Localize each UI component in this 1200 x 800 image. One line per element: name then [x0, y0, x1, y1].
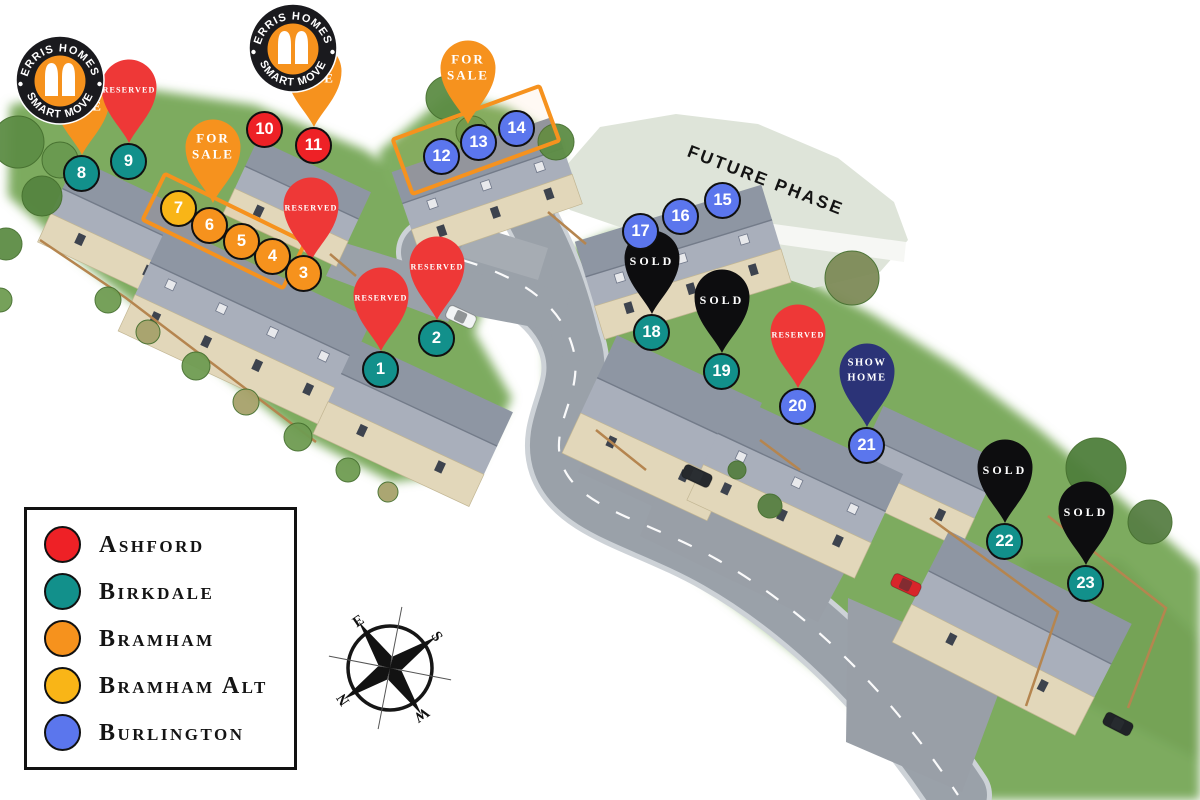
legend-item-bramham: Bramham — [27, 620, 294, 657]
plot-number: 20 — [788, 397, 806, 416]
erris-homes-logo: ERRIS HOMESSMART MOVE — [14, 34, 106, 131]
pin-for-sale-plots-4-7[interactable]: FORSALE — [181, 117, 245, 205]
plot-marker-9[interactable]: 9 — [110, 143, 147, 180]
pin-label: SOLD — [1064, 505, 1109, 519]
legend-item-birkdale: Birkdale — [27, 573, 294, 610]
legend-label: Bramham Alt — [99, 674, 268, 698]
legend-item-burlington: Burlington — [27, 714, 294, 751]
plot-number: 18 — [642, 323, 660, 342]
plot-number: 4 — [268, 247, 277, 266]
compass-letter-w: W — [411, 704, 432, 726]
plot-marker-19[interactable]: 19 — [703, 353, 740, 390]
plot-marker-10[interactable]: 10 — [246, 111, 283, 148]
plot-number: 8 — [77, 164, 86, 183]
plot-number: 19 — [712, 362, 730, 381]
legend-color-swatch — [44, 714, 81, 751]
plot-marker-8[interactable]: 8 — [63, 155, 100, 192]
plot-number: 9 — [124, 152, 133, 171]
legend-item-ashford: Ashford — [27, 526, 294, 563]
plot-marker-5[interactable]: 5 — [223, 223, 260, 260]
plot-number: 2 — [432, 329, 441, 348]
pin-label: RESERVED — [284, 204, 337, 213]
pin-label: FOR — [451, 52, 484, 67]
site-plan: FUTURE PHASE NESW FORSALEFORSALERESERVED… — [0, 0, 1200, 800]
legend-color-swatch — [44, 526, 81, 563]
pin-show-home-plot-21[interactable]: SHOWHOME — [835, 341, 899, 429]
pin-sold-plot-23[interactable]: SOLD — [1054, 479, 1118, 567]
plot-number: 1 — [376, 360, 385, 379]
plot-marker-20[interactable]: 20 — [779, 388, 816, 425]
plot-number: 5 — [237, 232, 246, 251]
plot-number: 7 — [174, 199, 183, 218]
plot-number: 22 — [995, 532, 1013, 551]
plot-number: 6 — [205, 216, 214, 235]
plot-marker-1[interactable]: 1 — [362, 351, 399, 388]
legend-label: Burlington — [99, 721, 245, 745]
pin-reserved-plot-9[interactable]: RESERVED — [97, 57, 161, 145]
legend-label: Birkdale — [99, 580, 214, 604]
plot-number: 3 — [299, 264, 308, 283]
plot-marker-14[interactable]: 14 — [498, 110, 535, 147]
pin-reserved-plot-20[interactable]: RESERVED — [766, 302, 830, 390]
plot-marker-23[interactable]: 23 — [1067, 565, 1104, 602]
plot-number: 14 — [507, 119, 525, 138]
pin-label: SOLD — [700, 293, 745, 307]
plot-marker-17[interactable]: 17 — [622, 213, 659, 250]
pin-label: RESERVED — [771, 331, 824, 340]
pin-label: RESERVED — [102, 86, 155, 95]
plot-marker-7[interactable]: 7 — [160, 190, 197, 227]
pin-label: SHOW — [848, 358, 887, 369]
compass-rose: NESW — [325, 603, 455, 738]
plot-marker-11[interactable]: 11 — [295, 127, 332, 164]
pin-reserved-plot-1[interactable]: RESERVED — [349, 265, 413, 353]
plot-number: 16 — [671, 207, 689, 226]
erris-homes-logo: ERRIS HOMESSMART MOVE — [247, 2, 339, 99]
legend-color-swatch — [44, 667, 81, 704]
pin-label: SALE — [192, 147, 234, 162]
plot-marker-2[interactable]: 2 — [418, 320, 455, 357]
legend-label: Ashford — [99, 533, 205, 557]
pin-for-sale-plots-12-14[interactable]: FORSALE — [436, 38, 500, 126]
pin-sold-plot-22[interactable]: SOLD — [973, 437, 1037, 525]
plot-marker-15[interactable]: 15 — [704, 182, 741, 219]
legend-color-swatch — [44, 620, 81, 657]
plot-marker-12[interactable]: 12 — [423, 138, 460, 175]
plot-marker-16[interactable]: 16 — [662, 198, 699, 235]
pin-reserved-plot-2[interactable]: RESERVED — [405, 234, 469, 322]
plot-number: 11 — [305, 136, 322, 155]
pin-sold-plot-19[interactable]: SOLD — [690, 267, 754, 355]
legend-label: Bramham — [99, 627, 215, 651]
plot-number: 23 — [1076, 574, 1094, 593]
pin-label: HOME — [847, 373, 886, 384]
legend-panel: AshfordBirkdaleBramhamBramham AltBurling… — [24, 507, 297, 770]
pin-label: SALE — [447, 68, 489, 83]
plot-number: 12 — [432, 147, 450, 166]
legend-color-swatch — [44, 573, 81, 610]
pin-label: SOLD — [983, 463, 1028, 477]
plot-number: 10 — [255, 120, 273, 139]
plot-marker-21[interactable]: 21 — [848, 427, 885, 464]
pin-label: RESERVED — [354, 294, 407, 303]
plot-marker-13[interactable]: 13 — [460, 124, 497, 161]
legend-item-bramham-alt: Bramham Alt — [27, 667, 294, 704]
pin-label: FOR — [196, 131, 229, 146]
plot-number: 15 — [713, 191, 731, 210]
plot-number: 21 — [857, 436, 875, 455]
pin-label: RESERVED — [410, 263, 463, 272]
plot-marker-18[interactable]: 18 — [633, 314, 670, 351]
pin-label: SOLD — [630, 254, 675, 268]
plot-number: 13 — [469, 133, 487, 152]
plot-marker-22[interactable]: 22 — [986, 523, 1023, 560]
plot-number: 17 — [631, 222, 649, 241]
